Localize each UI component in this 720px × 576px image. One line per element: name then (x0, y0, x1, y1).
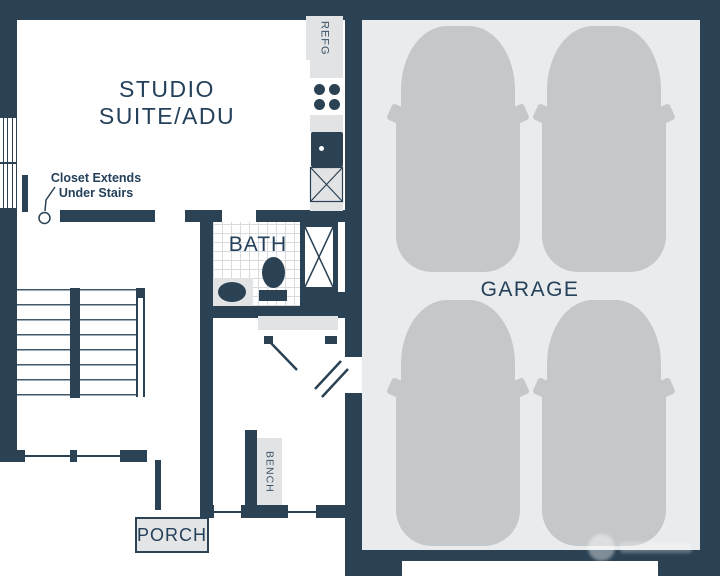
wall-bench-nook (245, 430, 257, 507)
studio-label: STUDIO SUITE/ADU (60, 74, 274, 132)
closet-note-line1: Closet Extends (51, 171, 141, 186)
car-body (542, 108, 666, 272)
car-top-right (542, 26, 666, 272)
car-bottom-left (396, 300, 520, 546)
stair-treads-left (17, 289, 70, 397)
wall-studio-bottom-left (60, 210, 155, 222)
sink-drain-icon (319, 146, 324, 151)
leader-circle-icon (39, 213, 50, 224)
porch-label-text: PORCH (137, 525, 207, 546)
studio-label-line1: STUDIO (119, 76, 215, 103)
stove-burner-icon (329, 84, 340, 95)
stove-burner-icon (314, 84, 325, 95)
shower-pan (305, 227, 333, 287)
window-entry-right (288, 505, 316, 518)
wall-closet-stub (22, 175, 28, 212)
window-entry-left (214, 505, 241, 518)
kitchen-counter (310, 60, 343, 78)
car-top-left (396, 26, 520, 272)
closet-note: Closet Extends Under Stairs (50, 170, 142, 202)
floor-plan: GARAGE STUDIO SUITE/ADU Closet Extends U… (0, 0, 720, 576)
wall-hall-left (200, 222, 213, 518)
wall-right (700, 0, 720, 576)
stove (310, 78, 343, 115)
bench-label: BENCH (257, 438, 282, 506)
door-leaf (315, 361, 341, 389)
bath-label-text: BATH (229, 233, 287, 257)
stair-treads-right (80, 289, 137, 397)
wall-stairroom-bottom (0, 450, 147, 462)
car-body (542, 382, 666, 546)
garage-label: GARAGE (430, 277, 630, 303)
closet-shelf (258, 316, 338, 330)
toilet-bowl-icon (262, 257, 285, 288)
toilet-tank-icon (259, 290, 287, 301)
kitchen-counter (310, 202, 343, 211)
wall-bath-top-right (256, 210, 345, 222)
car-bottom-right (542, 300, 666, 546)
garage-door-opening (345, 357, 362, 393)
stair-stringer-wall (70, 288, 80, 398)
stove-burner-icon (329, 99, 340, 110)
window-stairroom-left (25, 450, 70, 462)
door-leaf (270, 342, 297, 370)
kitchen-counter (310, 115, 343, 132)
closet-note-line2: Under Stairs (59, 186, 133, 201)
wall-top (0, 0, 720, 20)
shower (300, 222, 338, 292)
stair-railing (136, 298, 145, 397)
wall-porch-stub (155, 460, 161, 510)
kitchen-sink (311, 132, 343, 167)
window-stairroom-right (77, 450, 120, 462)
wall-bath-right-block (300, 292, 345, 318)
bath-sink-icon (218, 282, 246, 302)
refrigerator-label: REFG (306, 16, 343, 60)
watermark-logo-icon (588, 534, 615, 561)
car-body (396, 382, 520, 546)
wall-bath-top-left (185, 210, 222, 222)
window-left-wall (0, 118, 16, 208)
bath-label: BATH (215, 232, 301, 258)
watermark-text-blob (620, 542, 692, 553)
car-body (396, 108, 520, 272)
garage-overhead-door (402, 561, 658, 576)
garage-label-text: GARAGE (481, 278, 580, 302)
kitchen-appliance-box (310, 167, 343, 202)
porch-label-box: PORCH (135, 517, 209, 553)
wall-garage-left (345, 20, 362, 552)
wall-left (0, 17, 17, 462)
door-jamb (325, 336, 337, 344)
door-jamb (264, 336, 273, 344)
studio-label-line2: SUITE/ADU (99, 103, 235, 130)
stove-burner-icon (314, 99, 325, 110)
